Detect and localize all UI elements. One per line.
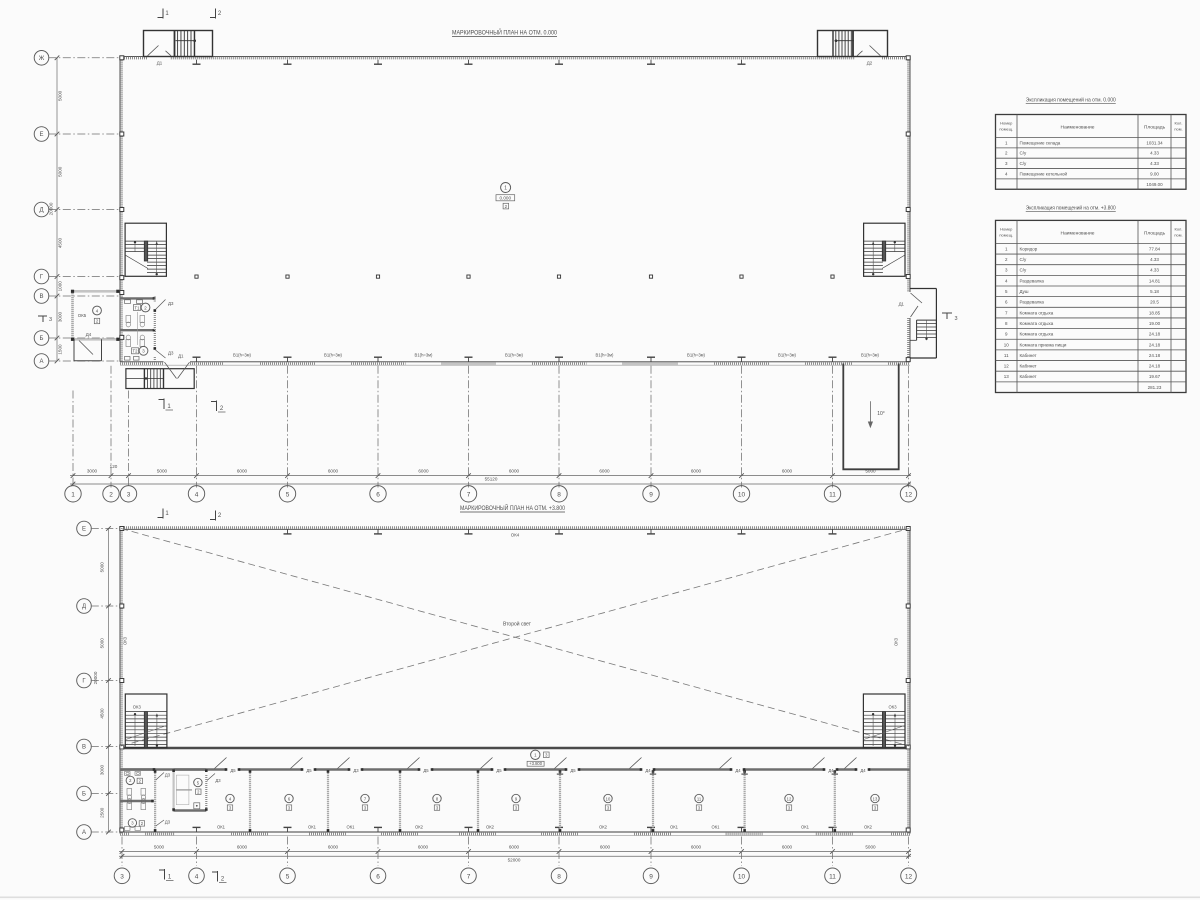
svg-text:9: 9 (649, 873, 653, 880)
svg-text:Е: Е (82, 527, 86, 533)
svg-text:Д5: Д5 (230, 768, 236, 773)
svg-text:4500: 4500 (58, 237, 63, 248)
svg-text:ОК1: ОК1 (346, 825, 355, 830)
svg-text:ОК1: ОК1 (801, 825, 810, 830)
svg-text:Д5: Д5 (496, 768, 502, 773)
svg-text:ОК3: ОК3 (889, 705, 898, 710)
svg-text:2500: 2500 (100, 807, 105, 818)
svg-text:10: 10 (738, 491, 746, 498)
svg-text:В1(h=3м): В1(h=3м) (778, 353, 796, 358)
svg-text:Наименование: Наименование (1061, 125, 1095, 131)
svg-text:4.33: 4.33 (1150, 151, 1159, 156)
svg-text:10: 10 (1004, 342, 1010, 347)
svg-text:9.00: 9.00 (1150, 171, 1159, 176)
svg-text:Д4: Д4 (735, 768, 741, 773)
svg-text:Коридор: Коридор (1020, 246, 1038, 251)
svg-text:18.85: 18.85 (1149, 310, 1161, 315)
svg-text:помещ.: помещ. (999, 232, 1013, 237)
svg-text:4.33: 4.33 (1150, 257, 1159, 262)
svg-text:Кол.: Кол. (1175, 121, 1183, 126)
svg-text:12: 12 (905, 491, 913, 498)
svg-text:6000: 6000 (509, 469, 520, 474)
svg-text:ОК2: ОК2 (415, 825, 424, 830)
svg-text:Душ: Душ (1020, 289, 1029, 294)
svg-text:7: 7 (467, 873, 471, 880)
svg-text:6000: 6000 (691, 469, 702, 474)
svg-text:24.18: 24.18 (1149, 342, 1161, 347)
svg-text:+3.800: +3.800 (529, 761, 543, 766)
svg-text:6000: 6000 (328, 469, 339, 474)
svg-text:Д5: Д5 (570, 768, 576, 773)
svg-text:С/у: С/у (1020, 257, 1028, 262)
svg-text:5000: 5000 (100, 562, 105, 573)
svg-text:Т1: Т1 (135, 305, 141, 310)
svg-text:3: 3 (49, 317, 52, 323)
svg-text:В1(h=3м): В1(h=3м) (415, 353, 433, 358)
svg-text:Д3: Д3 (168, 351, 174, 356)
svg-text:5: 5 (286, 491, 290, 498)
svg-text:ОК2: ОК2 (486, 825, 495, 830)
svg-text:Помещение котельной: Помещение котельной (1020, 170, 1068, 176)
svg-text:помещ.: помещ. (999, 127, 1013, 132)
svg-text:Д: Д (82, 604, 86, 610)
svg-text:6000: 6000 (509, 845, 520, 850)
svg-text:10°: 10° (877, 411, 885, 417)
svg-text:ОК1: ОК1 (217, 825, 226, 830)
svg-text:11: 11 (1004, 353, 1009, 358)
svg-text:5000: 5000 (157, 469, 168, 474)
svg-text:ОК1: ОК1 (308, 825, 317, 830)
svg-text:Номер: Номер (1000, 226, 1013, 231)
svg-text:В1(h=3м): В1(h=3м) (324, 353, 342, 358)
svg-text:С/у: С/у (1020, 161, 1028, 166)
svg-text:Экспликация помещений на отм.: Экспликация помещений на отм. +3.800 (1026, 204, 1116, 211)
svg-text:20000: 20000 (93, 671, 98, 684)
svg-text:Д4: Д4 (828, 768, 834, 773)
svg-text:20000: 20000 (49, 202, 54, 215)
svg-text:6000: 6000 (782, 469, 793, 474)
svg-text:4500: 4500 (100, 708, 105, 719)
svg-text:9: 9 (649, 491, 653, 498)
svg-text:5: 5 (286, 873, 290, 880)
svg-text:8: 8 (557, 873, 561, 880)
svg-text:12: 12 (905, 873, 913, 880)
svg-text:1031.34: 1031.34 (1146, 140, 1163, 145)
svg-text:8: 8 (557, 491, 561, 498)
svg-text:3: 3 (954, 316, 957, 322)
svg-text:1500: 1500 (58, 344, 63, 355)
svg-text:5000: 5000 (154, 845, 165, 850)
svg-text:Наименование: Наименование (1061, 230, 1095, 236)
svg-text:Б: Б (82, 792, 86, 798)
svg-text:Д3: Д3 (353, 768, 359, 773)
svg-text:Д3: Д3 (215, 778, 221, 783)
svg-text:Б: Б (40, 336, 44, 342)
svg-text:6: 6 (376, 873, 380, 880)
svg-text:6000: 6000 (237, 845, 248, 850)
svg-text:А: А (39, 359, 43, 365)
svg-text:В1(h=3м): В1(h=3м) (596, 353, 614, 358)
svg-text:14.81: 14.81 (1149, 278, 1161, 283)
svg-text:6000: 6000 (782, 845, 793, 850)
svg-text:7: 7 (467, 491, 471, 498)
svg-text:пом.: пом. (1174, 127, 1182, 132)
svg-text:Д2: Д2 (867, 61, 873, 66)
svg-text:Д5: Д5 (306, 768, 312, 773)
svg-text:24.18: 24.18 (1149, 364, 1161, 369)
svg-text:1000: 1000 (58, 281, 63, 292)
svg-text:Д1: Д1 (157, 61, 163, 66)
svg-text:10: 10 (738, 873, 746, 880)
svg-text:Д3: Д3 (165, 820, 171, 825)
svg-text:5000: 5000 (58, 166, 63, 177)
svg-text:Д4: Д4 (860, 768, 866, 773)
svg-text:5.18: 5.18 (1150, 289, 1159, 294)
svg-text:24.18: 24.18 (1149, 353, 1161, 358)
svg-text:4.33: 4.33 (1150, 268, 1159, 273)
svg-text:6: 6 (376, 491, 380, 498)
svg-text:11: 11 (829, 491, 836, 498)
svg-text:ОК5: ОК5 (78, 313, 87, 318)
svg-text:Номер: Номер (1000, 121, 1013, 126)
svg-text:МАРКИРОВОЧНЫЙ ПЛАН НА ОТМ. 0.0: МАРКИРОВОЧНЫЙ ПЛАН НА ОТМ. 0.000 (452, 28, 557, 37)
svg-text:ОК1: ОК1 (670, 825, 679, 830)
svg-text:20.5: 20.5 (1150, 300, 1159, 305)
svg-text:1049.00: 1049.00 (1146, 182, 1163, 187)
svg-text:Комната приема пищи: Комната приема пищи (1020, 342, 1067, 347)
svg-text:6000: 6000 (418, 845, 429, 850)
svg-text:ОК3: ОК3 (894, 637, 899, 646)
svg-text:Комната отдыха: Комната отдыха (1020, 310, 1054, 315)
svg-text:ОК2: ОК2 (864, 825, 873, 830)
svg-text:Раздевалка: Раздевалка (1020, 300, 1045, 305)
svg-text:6000: 6000 (328, 845, 339, 850)
svg-text:Комната отдыха: Комната отдыха (1020, 332, 1054, 337)
svg-text:Комната отдыха: Комната отдыха (1020, 321, 1054, 326)
svg-text:В1(h=3м): В1(h=3м) (505, 353, 523, 358)
svg-text:пом.: пом. (1174, 232, 1182, 237)
svg-text:19.67: 19.67 (1149, 374, 1161, 379)
svg-text:5000: 5000 (100, 638, 105, 649)
svg-text:В: В (82, 745, 86, 751)
svg-text:Д3: Д3 (165, 773, 171, 778)
svg-text:Ж: Ж (39, 56, 45, 62)
svg-text:ОК4: ОК4 (511, 533, 520, 538)
svg-text:24.18: 24.18 (1149, 332, 1161, 337)
svg-text:МАРКИРОВОЧНЫЙ ПЛАН НА ОТМ. +3.: МАРКИРОВОЧНЫЙ ПЛАН НА ОТМ. +3.800 (460, 503, 565, 512)
svg-text:А: А (82, 830, 86, 836)
svg-text:Кабинет: Кабинет (1020, 374, 1037, 379)
svg-text:5000: 5000 (865, 845, 876, 850)
svg-text:Д3: Д3 (168, 301, 174, 306)
svg-text:Кол.: Кол. (1175, 226, 1183, 231)
svg-text:120: 120 (110, 464, 118, 469)
svg-text:52000: 52000 (508, 857, 521, 862)
svg-text:281.23: 281.23 (1148, 385, 1162, 390)
svg-text:Помещение склада: Помещение склада (1020, 140, 1061, 145)
svg-text:Кабинет: Кабинет (1020, 364, 1037, 369)
svg-text:6000: 6000 (599, 469, 610, 474)
svg-text:ОК3: ОК3 (133, 705, 142, 710)
svg-text:ОК2: ОК2 (599, 825, 608, 830)
svg-text:4.33: 4.33 (1150, 161, 1159, 166)
svg-text:19.00: 19.00 (1149, 321, 1161, 326)
svg-text:12: 12 (787, 796, 792, 801)
svg-text:12: 12 (1004, 364, 1010, 369)
svg-text:ОК1: ОК1 (711, 825, 720, 830)
svg-text:3: 3 (127, 491, 131, 498)
svg-text:Площадь: Площадь (1144, 125, 1166, 131)
svg-text:4: 4 (195, 491, 199, 498)
svg-text:1: 1 (71, 491, 75, 498)
svg-text:В1(h=3м): В1(h=3м) (687, 353, 705, 358)
svg-text:В: В (39, 294, 43, 300)
svg-text:Д1: Д1 (178, 353, 184, 358)
svg-text:3: 3 (120, 873, 124, 880)
svg-text:В1(h=3м): В1(h=3м) (861, 353, 879, 358)
svg-text:3000: 3000 (100, 764, 105, 775)
svg-text:Второй свет: Второй свет (503, 621, 532, 628)
svg-text:2: 2 (109, 491, 113, 498)
svg-text:Д4: Д4 (645, 768, 651, 773)
svg-text:В1(h=3м): В1(h=3м) (233, 353, 251, 358)
svg-text:Экспликация помещений на отм.: Экспликация помещений на отм. 0.000 (1026, 97, 1116, 104)
svg-text:0.000: 0.000 (500, 196, 512, 201)
svg-text:6000: 6000 (418, 469, 429, 474)
svg-text:6000: 6000 (691, 845, 702, 850)
svg-text:11: 11 (697, 796, 702, 801)
svg-text:Д: Д (39, 208, 43, 214)
svg-text:55120: 55120 (485, 477, 498, 482)
svg-text:4: 4 (195, 873, 199, 880)
svg-text:3000: 3000 (87, 469, 98, 474)
svg-text:10: 10 (606, 796, 611, 801)
svg-text:Площадь: Площадь (1144, 230, 1166, 236)
svg-text:1: 1 (504, 186, 507, 192)
svg-text:3000: 3000 (58, 311, 63, 322)
svg-text:Т2: Т2 (133, 349, 139, 354)
svg-text:С/у: С/у (1020, 268, 1028, 273)
svg-text:13: 13 (873, 796, 878, 801)
svg-text:Е: Е (39, 132, 43, 138)
svg-text:11: 11 (829, 873, 836, 880)
svg-text:С/у: С/у (1020, 151, 1028, 156)
svg-text:Д1: Д1 (899, 302, 905, 307)
svg-text:Раздевалка: Раздевалка (1020, 278, 1045, 283)
svg-text:13: 13 (1004, 374, 1010, 379)
svg-text:77.84: 77.84 (1149, 246, 1161, 251)
svg-text:6000: 6000 (237, 469, 248, 474)
svg-text:Кабинет: Кабинет (1020, 353, 1037, 358)
svg-text:Д5: Д5 (423, 768, 429, 773)
svg-text:Д4: Д4 (86, 332, 92, 337)
svg-text:6000: 6000 (600, 845, 611, 850)
svg-text:ОК3: ОК3 (123, 636, 128, 645)
svg-text:5000: 5000 (58, 90, 63, 101)
